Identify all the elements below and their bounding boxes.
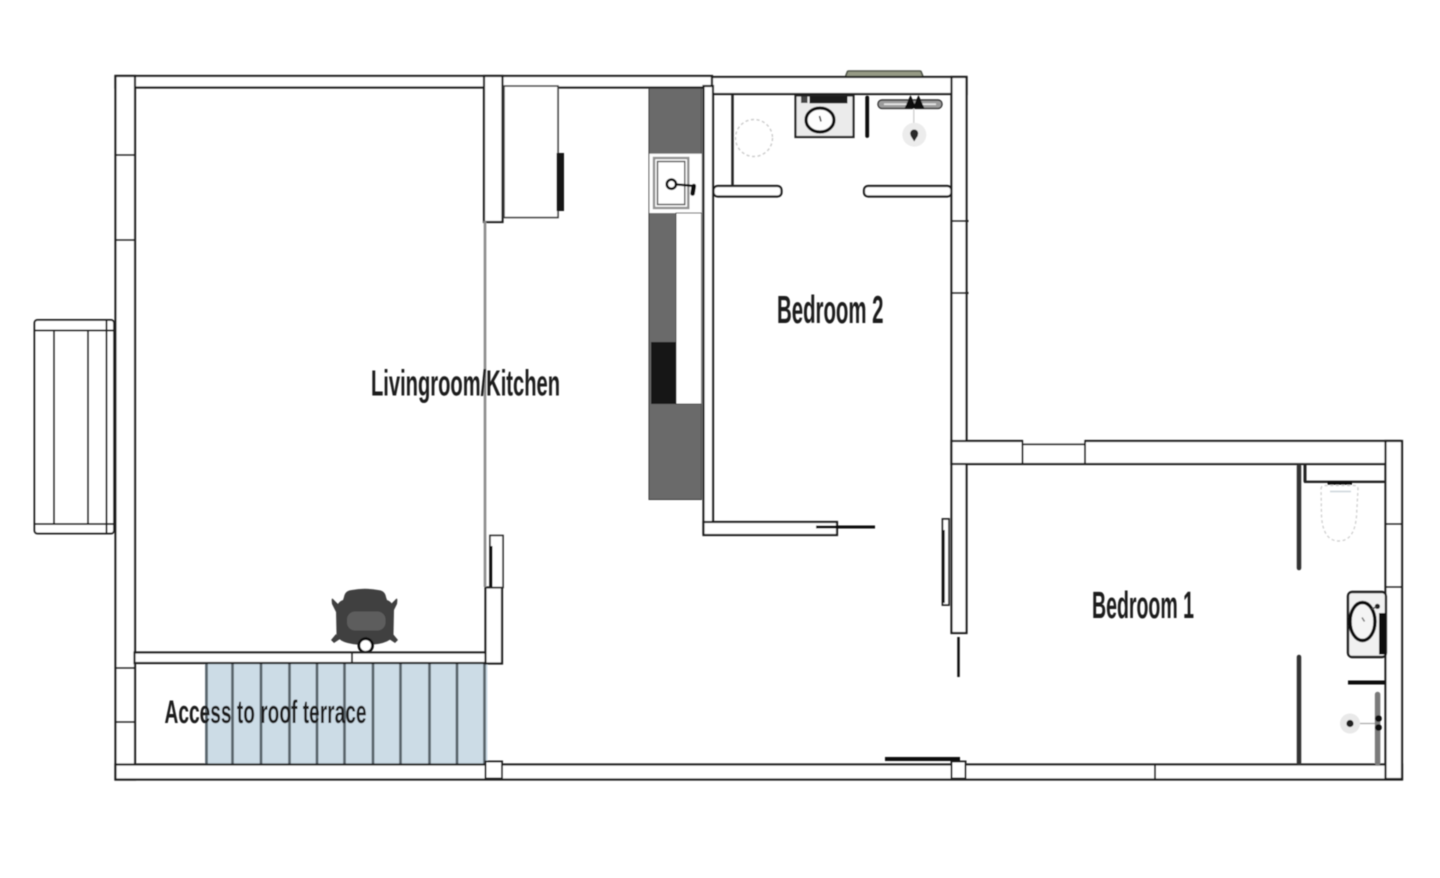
svg-text:Access to roof terrace: Access to roof terrace <box>165 694 367 730</box>
svg-text:Bedroom 2: Bedroom 2 <box>777 289 884 332</box>
svg-text:Bedroom 1: Bedroom 1 <box>1092 585 1194 627</box>
svg-text:Livingroom/Kitchen: Livingroom/Kitchen <box>371 363 560 404</box>
